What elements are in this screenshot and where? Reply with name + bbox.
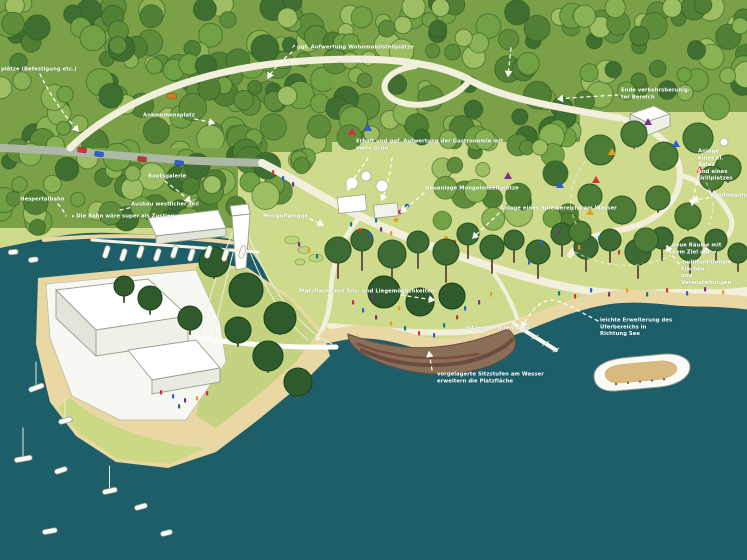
person-dot <box>359 228 361 233</box>
car <box>137 156 147 162</box>
person-dot <box>686 291 688 296</box>
person-dot <box>578 245 580 250</box>
person-dot <box>478 300 480 305</box>
person-dot <box>308 248 310 253</box>
person-dot <box>540 240 542 245</box>
person-dot <box>398 306 400 311</box>
person-dot <box>608 292 610 297</box>
person-dot <box>184 398 186 403</box>
person-dot <box>316 254 318 259</box>
person-dot <box>490 292 492 297</box>
tent-white <box>361 171 371 181</box>
gastronomie-building <box>337 195 367 214</box>
person-dot <box>352 300 354 305</box>
person-dot <box>350 222 352 227</box>
person-dot <box>598 236 600 241</box>
sailboat <box>28 257 39 263</box>
illustration-canvas <box>0 0 747 560</box>
minigolf-green <box>295 259 305 265</box>
minigolf-green <box>285 236 299 244</box>
person-dot <box>558 230 560 235</box>
person-dot <box>722 290 724 295</box>
person-dot <box>666 288 668 293</box>
person-dot <box>433 333 435 338</box>
person-dot <box>456 315 458 320</box>
masterplan-illustration: plätze (Befestigung etc.) ↗ggf. Aufwertu… <box>0 0 747 560</box>
person-dot <box>618 250 620 255</box>
car <box>77 147 87 153</box>
person-dot <box>160 390 162 395</box>
person-dot <box>464 306 466 311</box>
person-dot <box>282 176 284 181</box>
person-dot <box>418 331 420 336</box>
sailboat <box>8 249 18 255</box>
person-dot <box>272 170 274 175</box>
person-dot <box>574 294 576 299</box>
umbrella-dot <box>394 218 398 222</box>
person-dot <box>372 296 374 301</box>
person-dot <box>362 308 364 313</box>
person-dot <box>528 260 530 265</box>
person-dot <box>558 291 560 296</box>
person-dot <box>206 391 208 396</box>
person-dot <box>390 231 392 236</box>
car <box>94 151 104 157</box>
person-dot <box>298 242 300 247</box>
person-dot <box>646 292 648 297</box>
person-dot <box>590 288 592 293</box>
person-dot <box>375 315 377 320</box>
person-dot <box>380 227 382 232</box>
person-dot <box>375 218 377 223</box>
car <box>174 160 184 166</box>
person-dot <box>178 404 180 409</box>
car <box>167 93 177 99</box>
person-dot <box>369 233 371 238</box>
person-dot <box>292 182 294 187</box>
person-dot <box>626 288 628 293</box>
person-dot <box>196 396 198 401</box>
person-dot <box>443 323 445 328</box>
person-dot <box>172 394 174 399</box>
person-dot <box>390 321 392 326</box>
tent-white <box>720 138 728 146</box>
person-dot <box>704 287 706 292</box>
person-dot <box>404 326 406 331</box>
